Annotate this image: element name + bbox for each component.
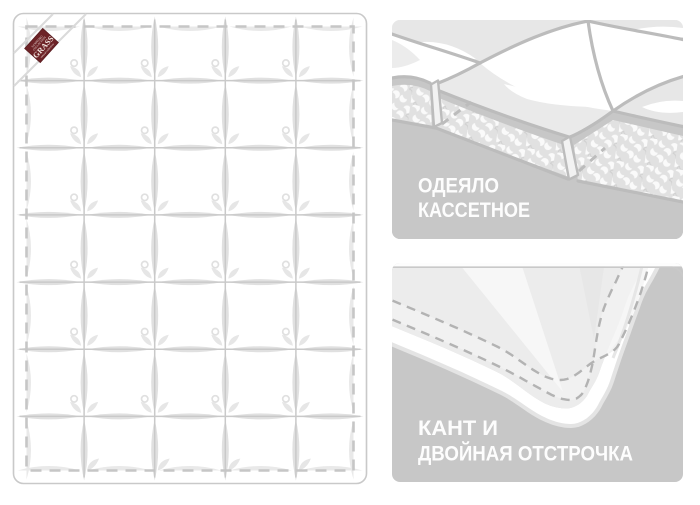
svg-text:ДВОЙНАЯ ОТСТРОЧКА: ДВОЙНАЯ ОТСТРОЧКА	[418, 442, 633, 466]
svg-text:КАССЕТНОЕ: КАССЕТНОЕ	[418, 199, 530, 222]
svg-text:ОДЕЯЛО: ОДЕЯЛО	[418, 175, 499, 198]
svg-text:КАНТ И: КАНТ И	[418, 417, 498, 440]
